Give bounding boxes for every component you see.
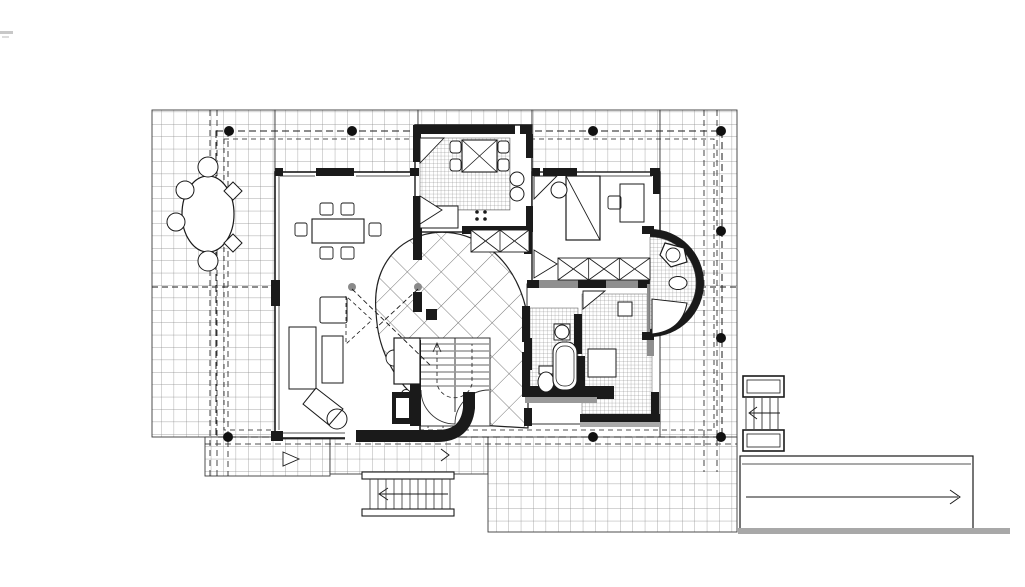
patio-chair-w1 <box>176 181 194 199</box>
kitchen-wall-right-a <box>526 134 533 158</box>
ramp <box>740 456 973 532</box>
bath-bottom-gray <box>525 397 597 403</box>
scan-artifact-1 <box>0 31 13 34</box>
patio-chair-w2 <box>167 213 185 231</box>
terrace-north <box>275 110 418 172</box>
bath-table <box>588 349 616 377</box>
bedroom-south-seg2 <box>578 280 606 288</box>
south-door-gap <box>345 429 356 443</box>
living-wall-right-b <box>413 292 422 312</box>
hall-east-wall-c <box>524 408 532 426</box>
bedroom-south-seg1 <box>527 280 539 288</box>
wing-bottom-wall <box>580 414 660 422</box>
bedroom-wall-east-a <box>653 172 660 194</box>
basin-counter <box>554 324 570 340</box>
terrace-south-west <box>205 437 330 476</box>
patio-chair-n <box>198 157 218 177</box>
bath-west-wall-a <box>522 306 530 342</box>
bathtub <box>553 342 577 390</box>
fireplace <box>394 338 420 384</box>
wing-bottom-gray <box>580 422 660 427</box>
floor-plan-page <box>0 0 1025 587</box>
living-wall-top-seg <box>316 168 354 176</box>
hall-column <box>426 309 437 320</box>
hearth-opening <box>396 398 409 418</box>
ramp-bottom-band <box>738 528 1010 534</box>
bed-stool <box>551 182 567 198</box>
pod-toilet <box>669 277 687 290</box>
patio-chair-s <box>198 251 218 271</box>
bath-bottom-wall2 <box>596 386 614 399</box>
bath-pod-stub-top <box>642 226 654 234</box>
kitchen-wall-top <box>413 125 515 134</box>
east-planter-bottom <box>743 430 784 451</box>
terrace-north-east <box>532 110 660 172</box>
east-stair-treads <box>746 398 778 429</box>
scan-artifact-2 <box>2 36 9 38</box>
bedroom-wall-top-seg <box>543 168 577 176</box>
living-wall-bottom-post <box>271 431 283 441</box>
terrace-south-east <box>488 437 737 532</box>
kitchen-wardrobe <box>471 230 529 252</box>
desk <box>620 184 644 222</box>
plan-root <box>0 31 1010 534</box>
garden-stair-rail-top <box>362 472 454 479</box>
east-planter-top <box>743 376 784 397</box>
dining-table <box>312 219 364 243</box>
living-wall-top-post1 <box>275 168 283 176</box>
bedroom-wardrobe <box>558 258 650 280</box>
garden-stair-rail-bottom <box>362 509 454 516</box>
kitchen-wall-top2 <box>520 125 532 134</box>
bath-shelf <box>618 302 632 316</box>
terrace-north-mid <box>418 110 532 125</box>
bedroom-wall-top-post1 <box>532 168 540 176</box>
living-wall-left-seg <box>271 280 280 306</box>
floor-plan-svg <box>0 0 1025 587</box>
living-wall-right-a <box>413 228 422 260</box>
living-wall-top-post2 <box>410 168 419 176</box>
toilet-bowl <box>538 372 554 392</box>
